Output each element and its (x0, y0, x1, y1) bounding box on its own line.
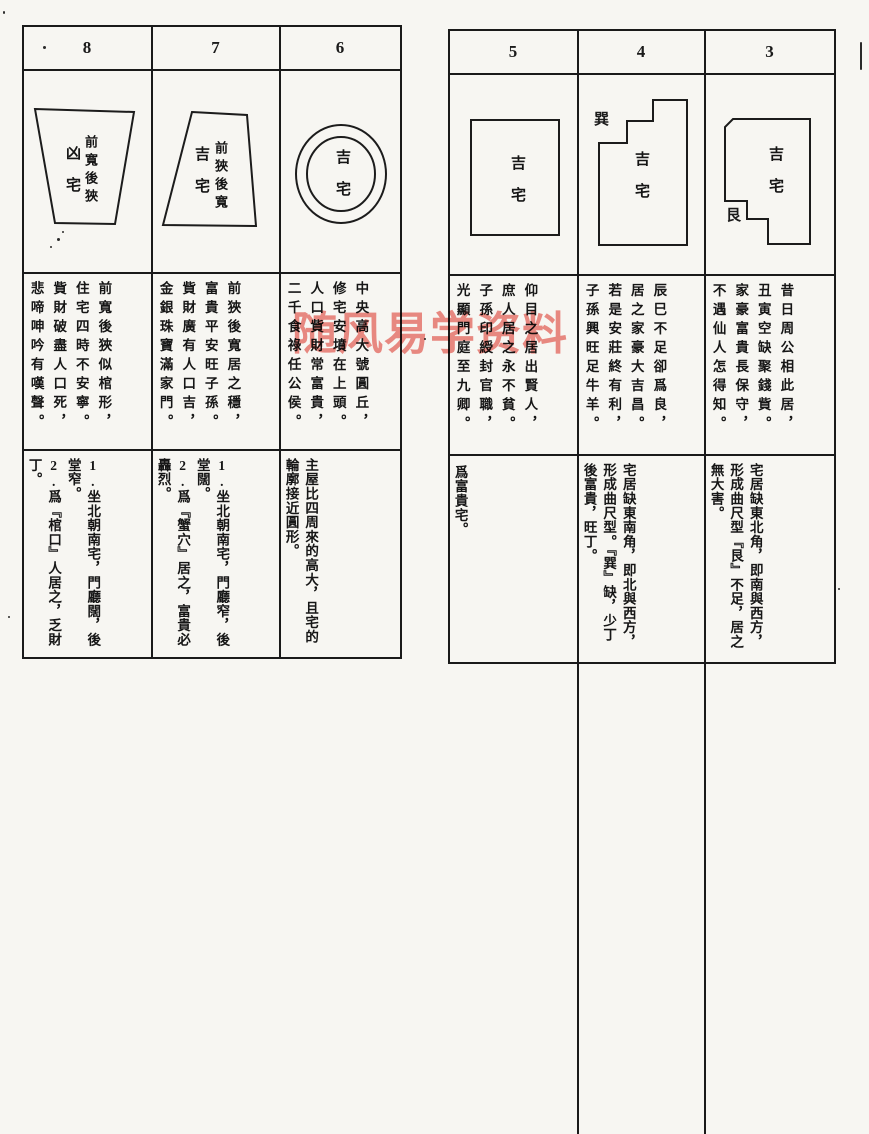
scan-speck (57, 238, 60, 241)
diagram-cell-7: 前狹後寬 吉宅 (151, 69, 279, 272)
table-right-page: 5 4 3 吉宅 巽 吉宅 艮 吉宅 仰目之居出賢人， 庶人居之永不貧。 子孫印… (448, 29, 836, 664)
verse-line: 前寬後狹似棺形， (93, 281, 115, 449)
verse-line: 貲財破盡人口死， (48, 281, 70, 449)
verse-line: 辰巳不足卻爲良， (648, 283, 670, 454)
note-item: 宅居缺東南角，即北與西方，形成曲尺型。『巽』缺，少丁後富貴，旺丁。 (579, 463, 638, 652)
verse-line: 不遇仙人怎得知。 (707, 283, 729, 454)
diagram-cell-5: 吉宅 (450, 73, 577, 274)
verse-line: 家豪富貴長保守， (730, 283, 752, 454)
verse-line: 修宅安墳在上頭。 (327, 281, 349, 449)
verse-line: 貲財廣有人口吉， (177, 281, 199, 449)
verse-cell-6: 中央高大號圓丘， 修宅安墳在上頭。 人口貲財常富貴， 二千食祿任公侯。 (279, 272, 400, 449)
scan-speck (838, 588, 840, 590)
verse-line: 住宅四時不安寧。 (70, 281, 92, 449)
column-number: 3 (765, 42, 775, 62)
verse-line: 昔日周公相此居， (775, 283, 797, 454)
notes-cell-7: 1.坐北朝南宅，門廳窄，後堂闊。 2.爲『蟹穴』居之，富貴必轟烈。 (151, 449, 279, 657)
note-item: 1.坐北朝南宅，門廳闊，後堂窄。 (63, 458, 102, 655)
compass-label-xun: 巽 (594, 113, 609, 128)
verse-line: 子孫印綬封官職， (474, 283, 496, 454)
note-item: 2.爲『棺口』人居之，乏財丁。 (24, 458, 63, 655)
scan-speck (50, 246, 52, 248)
verse-line: 人口貲財常富貴， (305, 281, 327, 449)
note-item: 2.爲『蟹穴』居之，富貴必轟烈。 (153, 458, 192, 655)
note-item: 主屋比四周來的高大，且宅的輪廓接近圓形。 (281, 458, 320, 647)
house-fortune-label: 吉宅 (334, 149, 349, 213)
column-number: 7 (211, 38, 221, 58)
column-header-4: 4 (577, 31, 704, 73)
verse-cell-5: 仰目之居出賢人， 庶人居之永不貧。 子孫印綬封官職， 光顯門庭至九卿。 (450, 274, 577, 454)
verse-line: 二千食祿任公侯。 (282, 281, 304, 449)
diagram-cell-3: 艮 吉宅 (704, 73, 834, 274)
scan-speck (424, 338, 426, 340)
scan-edge-mark (860, 42, 862, 70)
verse-cell-8: 前寬後狹似棺形， 住宅四時不安寧。 貲財破盡人口死， 悲啼呻吟有嘆聲。 (24, 272, 151, 449)
note-item: 1.坐北朝南宅，門廳窄，後堂闊。 (192, 458, 231, 655)
verse-cell-4: 辰巳不足卻爲良， 居之家豪大吉昌。 若是安莊終有利， 子孫興旺足牛羊。 (577, 274, 704, 454)
scan-speck (43, 46, 46, 49)
column-header-3: 3 (704, 31, 834, 73)
verse-cell-3: 昔日周公相此居， 丑寅空缺聚錢貲。 家豪富貴長保守， 不遇仙人怎得知。 (704, 274, 834, 454)
diagram-cell-4: 巽 吉宅 (577, 73, 704, 274)
notes-cell-4: 宅居缺東南角，即北與西方，形成曲尺型。『巽』缺，少丁後富貴，旺丁。 (577, 454, 704, 1134)
column-header-6: 6 (279, 27, 400, 69)
verse-line: 若是安莊終有利， (603, 283, 625, 454)
scan-speck (62, 231, 64, 233)
notes-cell-8: 1.坐北朝南宅，門廳闊，後堂窄。 2.爲『棺口』人居之，乏財丁。 (24, 449, 151, 657)
house-fortune-label: 吉宅 (509, 155, 524, 219)
verse-line: 富貴平安旺子孫。 (199, 281, 221, 449)
house-fortune-label: 吉宅 (193, 146, 208, 210)
scan-speck (8, 616, 10, 618)
verse-line: 光顯門庭至九卿。 (451, 283, 473, 454)
verse-line: 子孫興旺足牛羊。 (580, 283, 602, 454)
column-number: 5 (509, 42, 519, 62)
house-fortune-label: 凶宅 (64, 145, 79, 209)
column-number: 6 (336, 38, 346, 58)
verse-line: 丑寅空缺聚錢貲。 (752, 283, 774, 454)
note-item: 爲富貴宅。 (450, 465, 470, 1134)
column-number: 8 (83, 38, 93, 58)
scan-speck (3, 11, 5, 14)
scanned-book-page: { "watermark": "随风易学资料", "colors": { "wa… (0, 0, 869, 678)
notes-cell-5: 爲富貴宅。 (450, 454, 577, 1134)
shape-caption: 前寬後狹 (84, 135, 97, 207)
column-number: 4 (637, 42, 647, 62)
verse-line: 居之家豪大吉昌。 (625, 283, 647, 454)
note-item: 宅居缺東北角，即南與西方，形成曲尺型『艮』不足，居之無大害。 (706, 463, 765, 652)
notes-cell-6: 主屋比四周來的高大，且宅的輪廓接近圓形。 (279, 449, 400, 657)
compass-label-gen: 艮 (726, 209, 741, 224)
shape-caption: 前狹後寬 (214, 141, 227, 213)
verse-line: 中央高大號圓丘， (350, 281, 372, 449)
verse-line: 仰目之居出賢人， (519, 283, 541, 454)
notes-cell-3: 宅居缺東北角，即南與西方，形成曲尺型『艮』不足，居之無大害。 (704, 454, 834, 1134)
diagram-cell-8: 前寬後狹 凶宅 (24, 69, 151, 272)
table-left-page: 8 7 6 前寬後狹 凶宅 前狹後寬 吉宅 吉宅 前寬後狹似棺形， 住宅四時不安… (22, 25, 402, 659)
column-header-7: 7 (151, 27, 279, 69)
verse-cell-7: 前狹後寬居之穩， 富貴平安旺子孫。 貲財廣有人口吉， 金銀珠寶滿家門。 (151, 272, 279, 449)
house-fortune-label: 吉宅 (633, 151, 648, 215)
verse-line: 庶人居之永不貧。 (496, 283, 518, 454)
house-fortune-label: 吉宅 (767, 146, 782, 210)
verse-line: 金銀珠寶滿家門。 (154, 281, 176, 449)
verse-line: 悲啼呻吟有嘆聲。 (25, 281, 47, 449)
diagram-cell-6: 吉宅 (279, 69, 400, 272)
column-header-5: 5 (450, 31, 577, 73)
verse-line: 前狹後寬居之穩， (222, 281, 244, 449)
